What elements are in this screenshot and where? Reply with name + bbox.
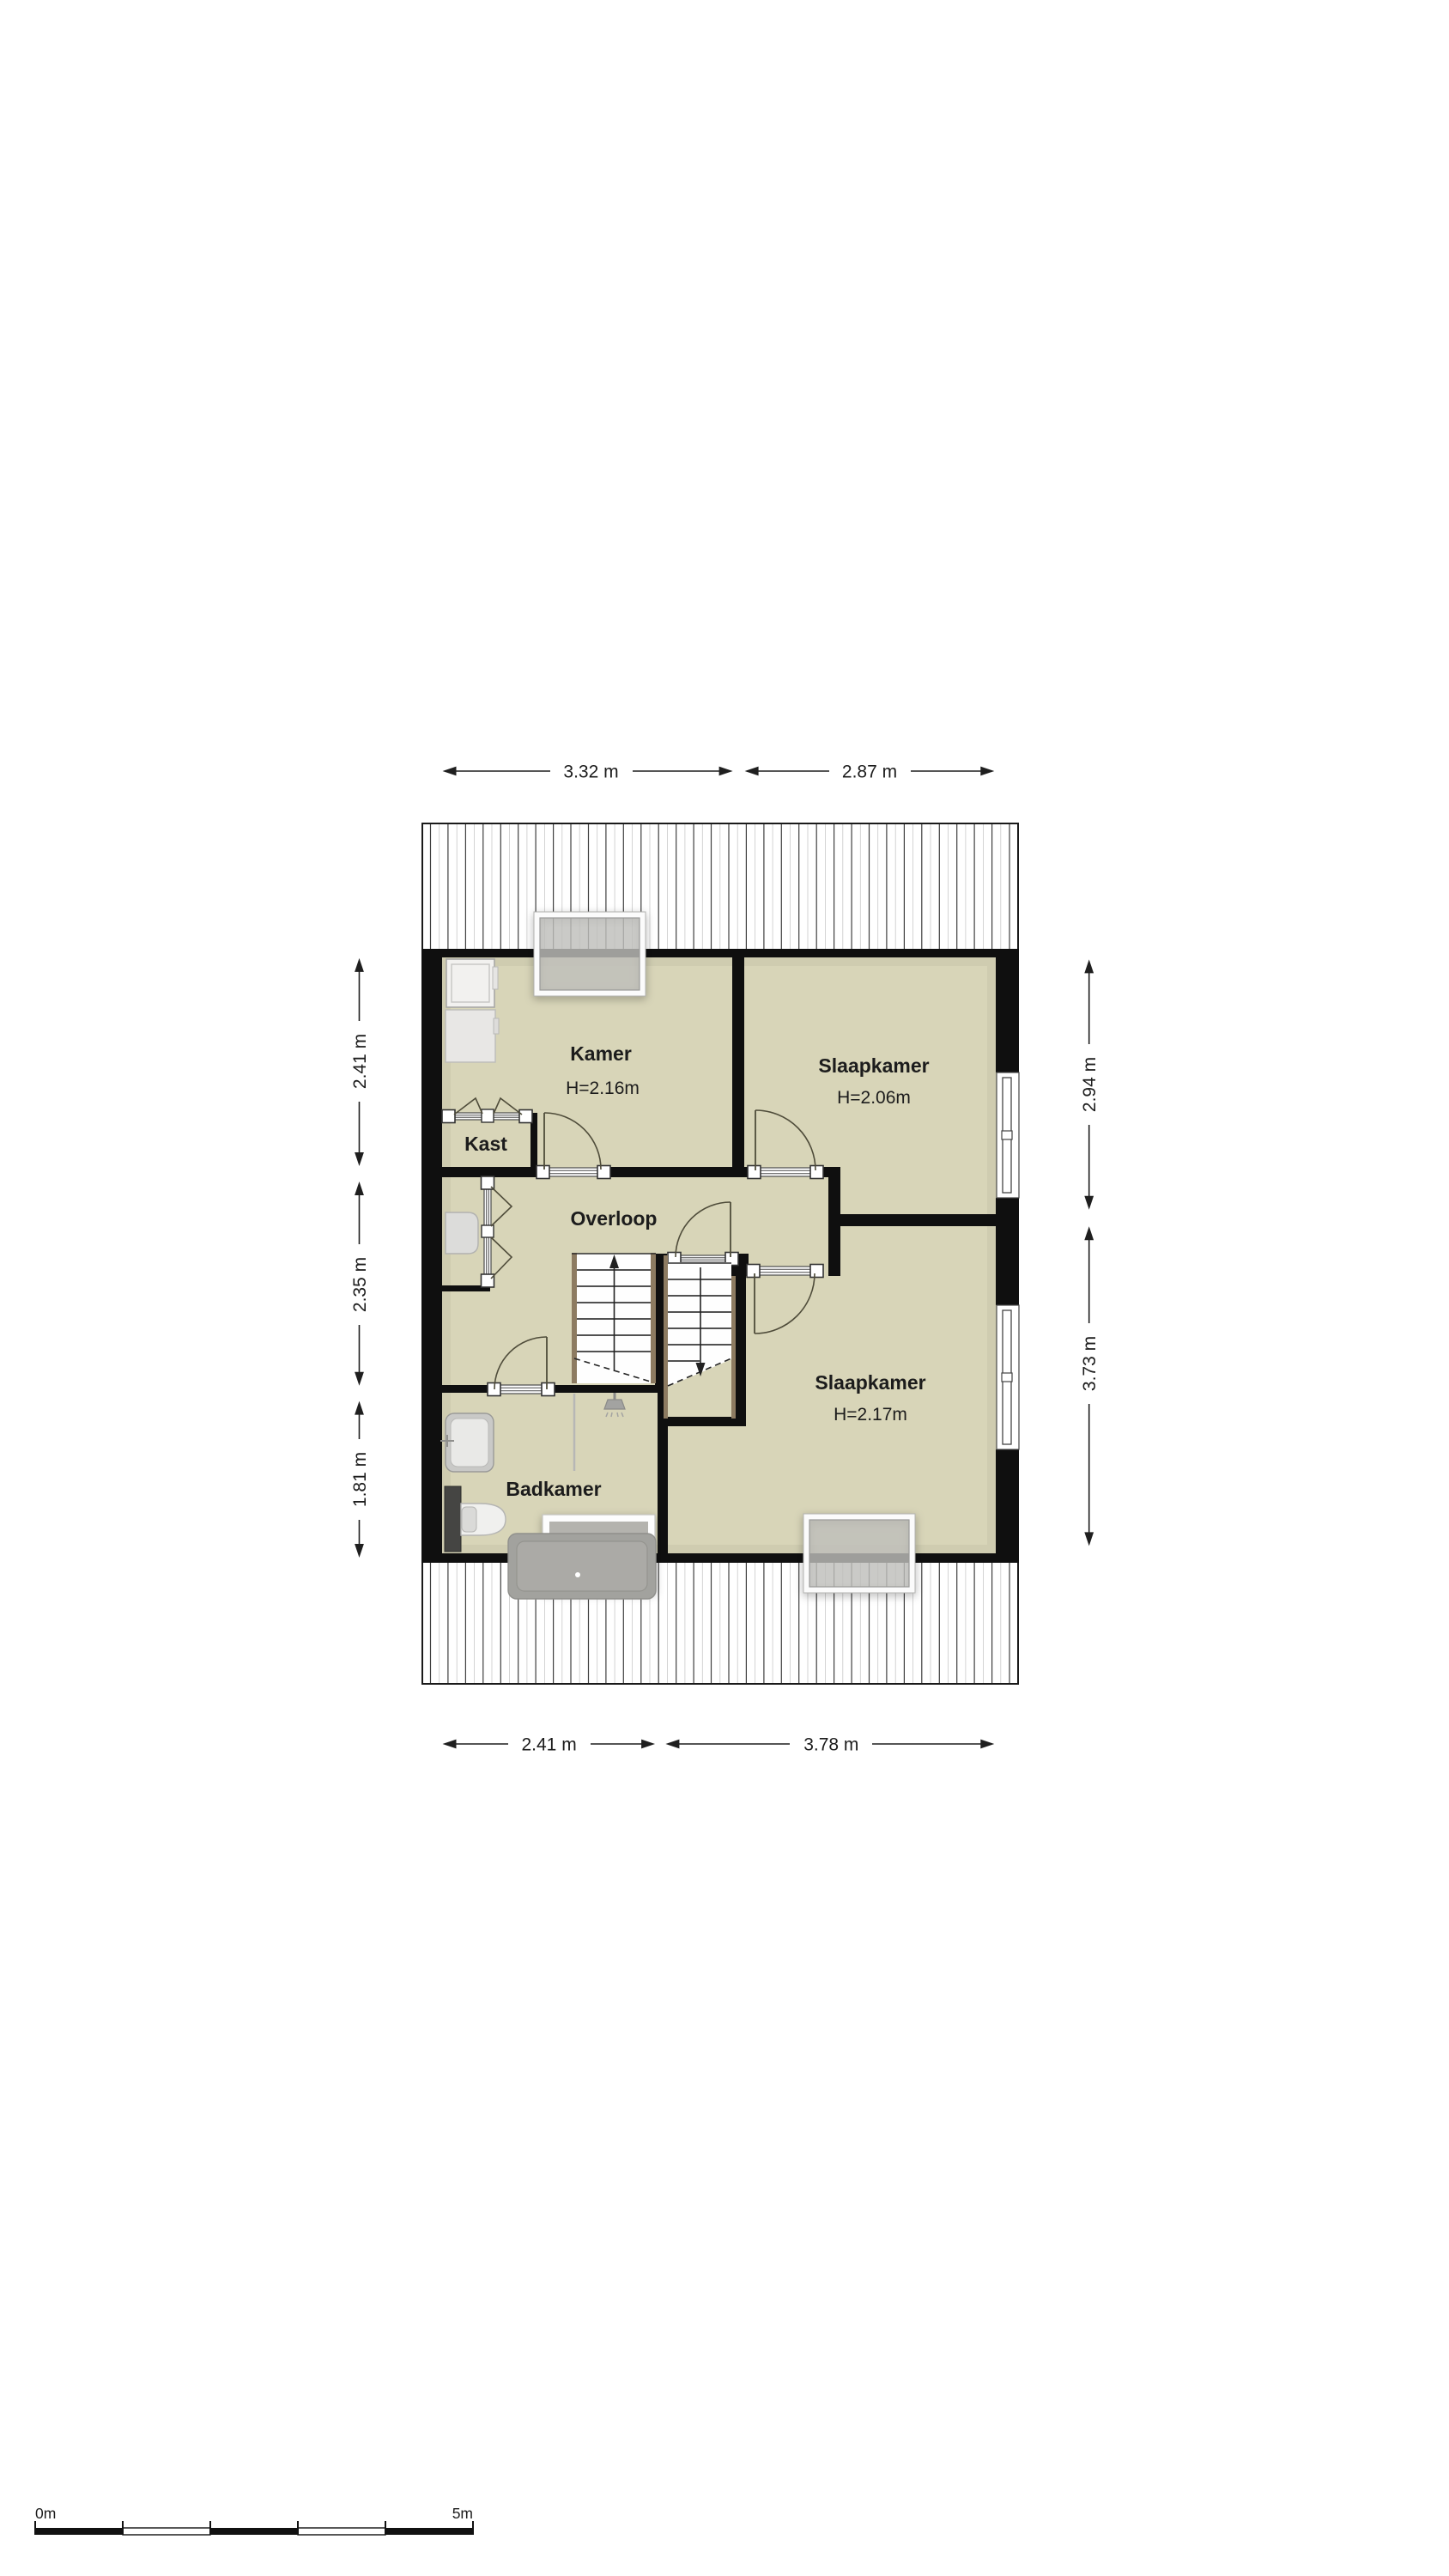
- svg-text:3.78 m: 3.78 m: [803, 1735, 858, 1755]
- svg-text:Kast: Kast: [464, 1133, 507, 1155]
- svg-text:1.81 m: 1.81 m: [350, 1452, 370, 1507]
- svg-text:H=2.17m: H=2.17m: [834, 1405, 907, 1425]
- svg-text:2.35 m: 2.35 m: [350, 1257, 370, 1312]
- svg-text:Badkamer: Badkamer: [506, 1478, 601, 1500]
- svg-text:2.41 m: 2.41 m: [350, 1034, 370, 1089]
- svg-text:2.87 m: 2.87 m: [842, 762, 897, 782]
- svg-text:H=2.06m: H=2.06m: [837, 1088, 911, 1108]
- svg-text:3.32 m: 3.32 m: [563, 762, 618, 782]
- svg-text:2.94 m: 2.94 m: [1080, 1057, 1100, 1112]
- svg-text:3.73 m: 3.73 m: [1080, 1336, 1100, 1391]
- svg-text:H=2.16m: H=2.16m: [566, 1078, 640, 1098]
- svg-text:5m: 5m: [452, 2505, 473, 2522]
- svg-text:0m: 0m: [35, 2505, 56, 2522]
- svg-text:Slaapkamer: Slaapkamer: [818, 1054, 929, 1077]
- svg-text:Slaapkamer: Slaapkamer: [815, 1371, 925, 1394]
- svg-text:2.41 m: 2.41 m: [521, 1735, 576, 1755]
- svg-text:Kamer: Kamer: [570, 1042, 632, 1065]
- svg-text:Overloop: Overloop: [571, 1207, 658, 1230]
